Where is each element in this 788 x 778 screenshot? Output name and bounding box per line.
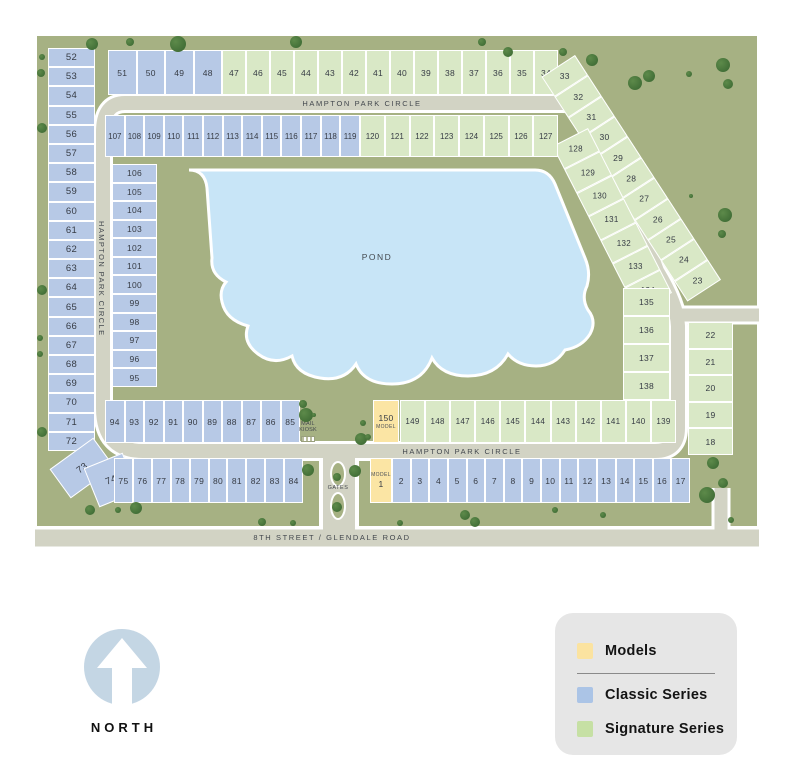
lot-136: 136 — [623, 316, 670, 344]
lot-8: 8 — [504, 458, 523, 503]
lot-117: 117 — [301, 115, 321, 157]
lot-82: 82 — [246, 458, 265, 503]
lot-50: 50 — [137, 50, 166, 95]
tree-icon — [503, 47, 513, 57]
lot-122: 122 — [410, 115, 435, 157]
lot-70: 70 — [48, 393, 95, 412]
lot-107: 107 — [105, 115, 125, 157]
lot-10: 10 — [541, 458, 560, 503]
lot-106: 106 — [112, 164, 157, 183]
tree-icon — [39, 54, 45, 60]
tree-icon — [718, 478, 728, 488]
lot-145: 145 — [500, 400, 525, 443]
lot-19: 19 — [688, 402, 733, 429]
tree-icon — [332, 502, 342, 512]
tree-icon — [115, 507, 121, 513]
legend-item-signature-series: Signature Series — [577, 721, 724, 737]
tree-icon — [349, 465, 361, 477]
lot-7: 7 — [485, 458, 504, 503]
lot-123: 123 — [434, 115, 459, 157]
lot-150-model-tag: MODEL — [376, 424, 396, 430]
tree-icon — [37, 427, 47, 437]
lot-112: 112 — [203, 115, 223, 157]
lot-14: 14 — [616, 458, 635, 503]
lot-115: 115 — [262, 115, 282, 157]
lot-102: 102 — [112, 238, 157, 257]
tree-icon — [628, 76, 642, 90]
lot-93: 93 — [125, 400, 145, 443]
legend-item-models: Models — [577, 643, 657, 659]
lot-row-bottom-right: 234567891011121314151617 — [392, 458, 690, 503]
lot-69: 69 — [48, 374, 95, 393]
lot-column-left-inner: 1061051041031021011009998979695 — [112, 164, 157, 387]
lot-48: 48 — [194, 50, 223, 95]
street-label-hampton-top: HAMPTON PARK CIRCLE — [252, 99, 472, 108]
lot-66: 66 — [48, 317, 95, 336]
legend: Models Classic Series Signature Series — [555, 613, 737, 755]
lot-57: 57 — [48, 144, 95, 163]
tree-icon — [470, 517, 480, 527]
lot-150-number: 150 — [378, 413, 393, 423]
tree-icon — [130, 502, 142, 514]
lot-135: 135 — [623, 288, 670, 316]
lot-149: 149 — [400, 400, 425, 443]
lot-96: 96 — [112, 350, 157, 369]
lot-2: 2 — [392, 458, 411, 503]
lot-146: 146 — [475, 400, 500, 443]
tree-icon — [699, 487, 715, 503]
lot-43: 43 — [318, 50, 342, 95]
lot-126: 126 — [509, 115, 534, 157]
tree-icon — [86, 38, 98, 50]
lot-90: 90 — [183, 400, 203, 443]
lot-46: 46 — [246, 50, 270, 95]
lot-9: 9 — [522, 458, 541, 503]
lot-18: 18 — [688, 428, 733, 455]
tree-icon — [552, 507, 558, 513]
lot-6: 6 — [467, 458, 486, 503]
lot-22: 22 — [688, 322, 733, 349]
tree-icon — [299, 408, 313, 422]
lot-142: 142 — [576, 400, 601, 443]
lot-116: 116 — [281, 115, 301, 157]
lot-92: 92 — [144, 400, 164, 443]
legend-label: Signature Series — [605, 721, 724, 737]
lot-87: 87 — [242, 400, 262, 443]
signature-series-color-swatch — [577, 721, 593, 737]
lot-148: 148 — [425, 400, 450, 443]
lot-114: 114 — [242, 115, 262, 157]
lot-21: 21 — [688, 349, 733, 376]
lot-137: 137 — [623, 344, 670, 372]
lot-138: 138 — [623, 372, 670, 400]
lot-89: 89 — [203, 400, 223, 443]
lot-42: 42 — [342, 50, 366, 95]
lot-119: 119 — [340, 115, 360, 157]
lot-row-2-classic: 107108109110111112113114115116117118119 — [105, 115, 360, 157]
lot-127: 127 — [533, 115, 558, 157]
lot-98: 98 — [112, 313, 157, 332]
tree-icon — [37, 351, 43, 357]
lot-118: 118 — [321, 115, 341, 157]
lot-99: 99 — [112, 294, 157, 313]
lot-row-mid-signature: 149148147146145144143142141140139 — [400, 400, 676, 443]
lot-35: 35 — [510, 50, 534, 95]
lot-53: 53 — [48, 67, 95, 86]
north-compass — [84, 629, 160, 705]
lot-95: 95 — [112, 368, 157, 387]
lot-79: 79 — [190, 458, 209, 503]
lot-44: 44 — [294, 50, 318, 95]
models-color-swatch — [577, 643, 593, 659]
lot-83: 83 — [265, 458, 284, 503]
lot-37: 37 — [462, 50, 486, 95]
tree-icon — [126, 38, 134, 46]
lot-97: 97 — [112, 331, 157, 350]
lot-row-top-classic: 51504948 — [108, 50, 222, 95]
tree-icon — [478, 38, 486, 46]
lot-147: 147 — [450, 400, 475, 443]
lot-150-model: 150 MODEL — [373, 400, 399, 443]
tree-icon — [643, 70, 655, 82]
tree-icon — [397, 520, 403, 526]
tree-icon — [718, 230, 726, 238]
lot-row-bottom-left: 75767778798081828384 — [114, 458, 303, 503]
lot-105: 105 — [112, 183, 157, 202]
lot-109: 109 — [144, 115, 164, 157]
community-site-map: 5253545556575859606162636465666768697071… — [37, 36, 757, 545]
tree-icon — [689, 194, 693, 198]
lot-1-model: MODEL 1 — [370, 458, 392, 503]
tree-icon — [302, 464, 314, 476]
lot-140: 140 — [626, 400, 651, 443]
lot-77: 77 — [152, 458, 171, 503]
lot-81: 81 — [227, 458, 246, 503]
tree-icon — [37, 123, 47, 133]
street-label-hampton-bottom: HAMPTON PARK CIRCLE — [352, 447, 572, 456]
lot-65: 65 — [48, 297, 95, 316]
lot-60: 60 — [48, 202, 95, 221]
lot-78: 78 — [171, 458, 190, 503]
lot-88: 88 — [222, 400, 242, 443]
tree-icon — [258, 518, 266, 526]
lot-71: 71 — [48, 413, 95, 432]
lot-100: 100 — [112, 275, 157, 294]
lot-54: 54 — [48, 86, 95, 105]
tree-icon — [586, 54, 598, 66]
tree-icon — [170, 36, 186, 52]
lot-38: 38 — [438, 50, 462, 95]
lot-column-right-outer: 2221201918 — [688, 322, 733, 455]
lot-80: 80 — [209, 458, 228, 503]
tree-icon — [365, 434, 371, 440]
tree-icon — [37, 285, 47, 295]
site-plan-page: { "map": { "streets": { "hampton_park_ci… — [0, 0, 788, 778]
lot-144: 144 — [525, 400, 550, 443]
lot-62: 62 — [48, 240, 95, 259]
lot-row-2-signature: 120121122123124125126127 — [360, 115, 558, 157]
lot-61: 61 — [48, 221, 95, 240]
tree-icon — [728, 517, 734, 523]
lot-113: 113 — [223, 115, 243, 157]
street-label-hampton-left: HAMPTON PARK CIRCLE — [97, 186, 106, 371]
lot-76: 76 — [133, 458, 152, 503]
tree-icon — [686, 71, 692, 77]
lot-103: 103 — [112, 220, 157, 239]
tree-icon — [333, 473, 341, 481]
lot-39: 39 — [414, 50, 438, 95]
lot-101: 101 — [112, 257, 157, 276]
lot-63: 63 — [48, 259, 95, 278]
tree-icon — [559, 48, 567, 56]
lot-51: 51 — [108, 50, 137, 95]
tree-icon — [360, 420, 366, 426]
tree-icon — [312, 413, 316, 417]
lot-94: 94 — [105, 400, 125, 443]
lot-41: 41 — [366, 50, 390, 95]
tree-icon — [460, 510, 470, 520]
north-label: NORTH — [64, 720, 184, 735]
lot-84: 84 — [284, 458, 303, 503]
tree-icon — [85, 505, 95, 515]
lot-1-number: 1 — [378, 479, 383, 489]
gates-label: GATES — [323, 485, 353, 491]
tree-icon — [290, 36, 302, 48]
lot-47: 47 — [222, 50, 246, 95]
lot-55: 55 — [48, 106, 95, 125]
lot-20: 20 — [688, 375, 733, 402]
lot-13: 13 — [597, 458, 616, 503]
tree-icon — [723, 79, 733, 89]
lot-121: 121 — [385, 115, 410, 157]
mail-kiosk-icon — [301, 436, 315, 442]
lot-52: 52 — [48, 48, 95, 67]
tree-icon — [299, 400, 307, 408]
lot-125: 125 — [484, 115, 509, 157]
lot-68: 68 — [48, 355, 95, 374]
lot-column-right-inner: 135136137138 — [623, 288, 670, 400]
lot-64: 64 — [48, 278, 95, 297]
tree-icon — [716, 58, 730, 72]
legend-label: Classic Series — [605, 687, 708, 703]
lot-3: 3 — [411, 458, 430, 503]
tree-icon — [37, 335, 43, 341]
lot-16: 16 — [653, 458, 672, 503]
lot-49: 49 — [165, 50, 194, 95]
lot-row-mid-classic: 94939291908988878685 — [105, 400, 300, 443]
tree-icon — [600, 512, 606, 518]
lot-139: 139 — [651, 400, 676, 443]
lot-5: 5 — [448, 458, 467, 503]
lot-1-model-tag: MODEL — [371, 472, 391, 478]
lot-11: 11 — [560, 458, 579, 503]
lot-91: 91 — [164, 400, 184, 443]
lot-56: 56 — [48, 125, 95, 144]
legend-divider — [577, 673, 715, 674]
tree-icon — [718, 208, 732, 222]
lot-110: 110 — [164, 115, 184, 157]
lot-12: 12 — [578, 458, 597, 503]
lot-15: 15 — [634, 458, 653, 503]
lot-111: 111 — [183, 115, 203, 157]
classic-series-color-swatch — [577, 687, 593, 703]
tree-icon — [37, 69, 45, 77]
tree-icon — [290, 520, 296, 526]
lot-124: 124 — [459, 115, 484, 157]
lot-4: 4 — [429, 458, 448, 503]
north-arrow-icon — [84, 629, 160, 713]
lot-59: 59 — [48, 182, 95, 201]
mail-kiosk-label: MAIL KIOSK — [293, 421, 323, 433]
lot-75: 75 — [114, 458, 133, 503]
lot-67: 67 — [48, 336, 95, 355]
lot-17: 17 — [671, 458, 690, 503]
lot-45: 45 — [270, 50, 294, 95]
lot-108: 108 — [125, 115, 145, 157]
lot-120: 120 — [360, 115, 385, 157]
lot-143: 143 — [551, 400, 576, 443]
lot-86: 86 — [261, 400, 281, 443]
tree-icon — [707, 457, 719, 469]
pond-shape — [189, 170, 593, 384]
legend-label: Models — [605, 643, 657, 659]
lot-column-left-outer: 5253545556575859606162636465666768697071… — [48, 48, 95, 451]
lot-58: 58 — [48, 163, 95, 182]
pond-label: POND — [347, 252, 407, 262]
lot-141: 141 — [601, 400, 626, 443]
lot-104: 104 — [112, 201, 157, 220]
lot-40: 40 — [390, 50, 414, 95]
legend-item-classic-series: Classic Series — [577, 687, 708, 703]
street-label-8th-street: 8TH STREET / GLENDALE ROAD — [217, 533, 447, 542]
